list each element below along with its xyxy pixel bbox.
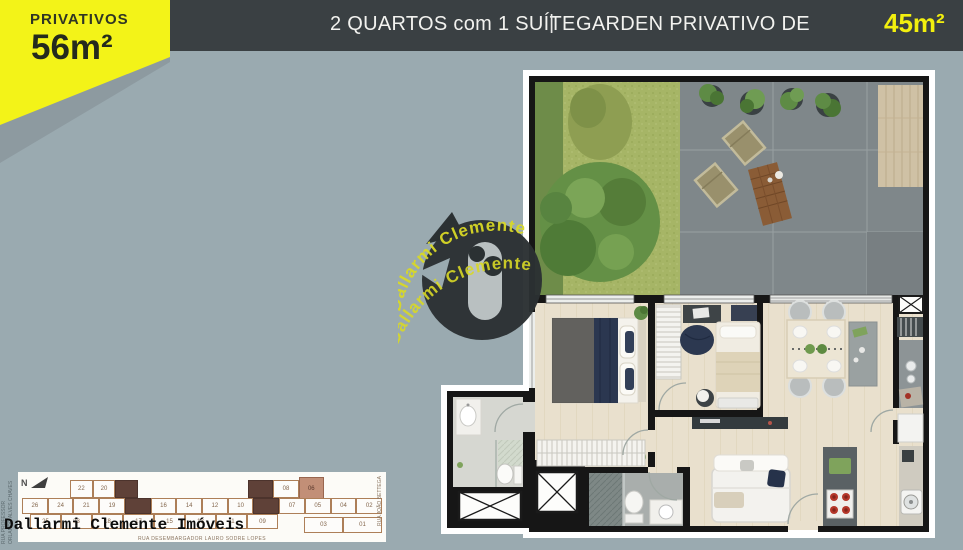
street-label-right: RUA JOÃO BETTEGA — [377, 471, 383, 531]
unit-cell: 21 — [73, 498, 99, 514]
unit-cell: 08 — [273, 480, 298, 498]
unit-cell: 12 — [202, 498, 228, 514]
unit-cell: 10 — [228, 498, 254, 514]
stair-block — [248, 480, 273, 498]
fridge — [898, 414, 923, 442]
stair-block — [253, 498, 279, 514]
unit-cell: 22 — [70, 480, 93, 498]
unit-row-top-right: 08 06 — [248, 480, 324, 498]
ensuite-bathroom — [453, 397, 535, 487]
plant — [634, 306, 648, 320]
shower — [498, 440, 523, 466]
compass-n-label: N — [21, 478, 28, 488]
garden-title: GARDEN PRIVATIVO DE — [576, 13, 810, 36]
flyer-canvas: 2 QUARTOS com 1 SUÍTE | GARDEN PRIVATIVO… — [0, 0, 963, 550]
badge-area-value: 56m² — [31, 28, 113, 68]
headboard — [638, 320, 646, 402]
garden — [535, 82, 923, 295]
stair-block — [115, 480, 138, 498]
unit-cell: 03 — [304, 517, 343, 533]
stove — [827, 490, 853, 518]
unit-cell: 16 — [151, 498, 177, 514]
toilet — [497, 464, 522, 484]
shower — [589, 473, 622, 526]
unit-row-bottom-right: 03 01 — [304, 517, 382, 533]
unit-cell: 24 — [48, 498, 74, 514]
toilet — [625, 491, 643, 523]
unit-cell: 07 — [279, 498, 305, 514]
unit-cell: 19 — [99, 498, 125, 514]
watermark-logo: Dallarmi Clemente Dallarmi Clemente — [398, 200, 578, 365]
unit-row-top-left: 22 20 — [70, 480, 138, 498]
agency-name: Dallarmi Clemente Imóveis — [4, 516, 244, 534]
badge-label: PRIVATIVOS — [30, 11, 129, 28]
unit-cell: 09 — [247, 514, 278, 529]
unit-cell: 26 — [22, 498, 48, 514]
street-label-bottom: RUA DESEMBARGADOR LAURO SODRE LOPES — [18, 536, 386, 542]
unit-cell: 04 — [331, 498, 357, 514]
unit-row-middle: 26 24 21 19 16 14 12 10 07 05 04 02 — [22, 498, 382, 514]
compass: N — [21, 477, 48, 488]
compass-arrow-icon — [31, 477, 48, 488]
sofa — [712, 455, 790, 522]
unit-cell-highlighted: 06 — [299, 477, 324, 500]
unit-cell: 14 — [176, 498, 202, 514]
unit-cell: 20 — [93, 480, 116, 498]
wardrobe — [656, 305, 681, 379]
garden-area-value: 45m² — [884, 8, 945, 39]
stair-block — [125, 498, 151, 514]
shelf — [731, 305, 757, 321]
unit-cell: 05 — [305, 498, 331, 514]
wood-deck — [878, 85, 923, 187]
unit-type-title: 2 QUARTOS com 1 SUÍTE — [330, 13, 576, 36]
title-separator: | — [549, 12, 554, 35]
